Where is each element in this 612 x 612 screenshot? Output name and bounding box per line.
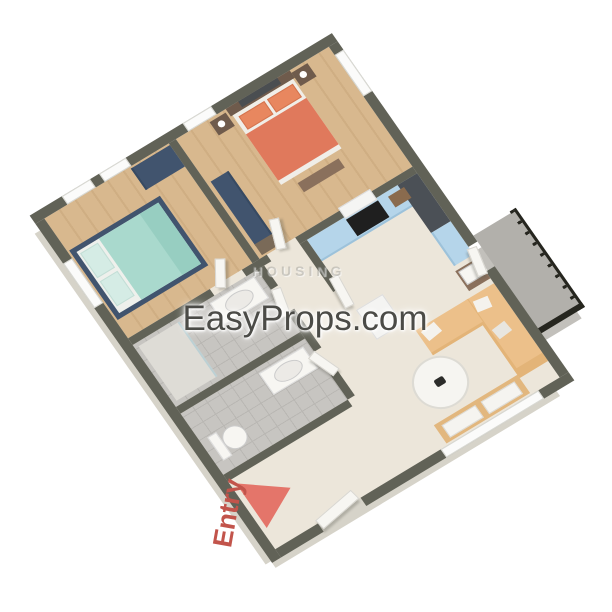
housing-watermark: HOUSING bbox=[252, 263, 345, 279]
floorplan-render: HOUSING EasyProps.com Entry bbox=[0, 0, 612, 612]
bedroom2-door bbox=[215, 258, 226, 288]
easyprops-watermark: EasyProps.com bbox=[80, 299, 530, 339]
apartment-plan bbox=[30, 33, 575, 563]
